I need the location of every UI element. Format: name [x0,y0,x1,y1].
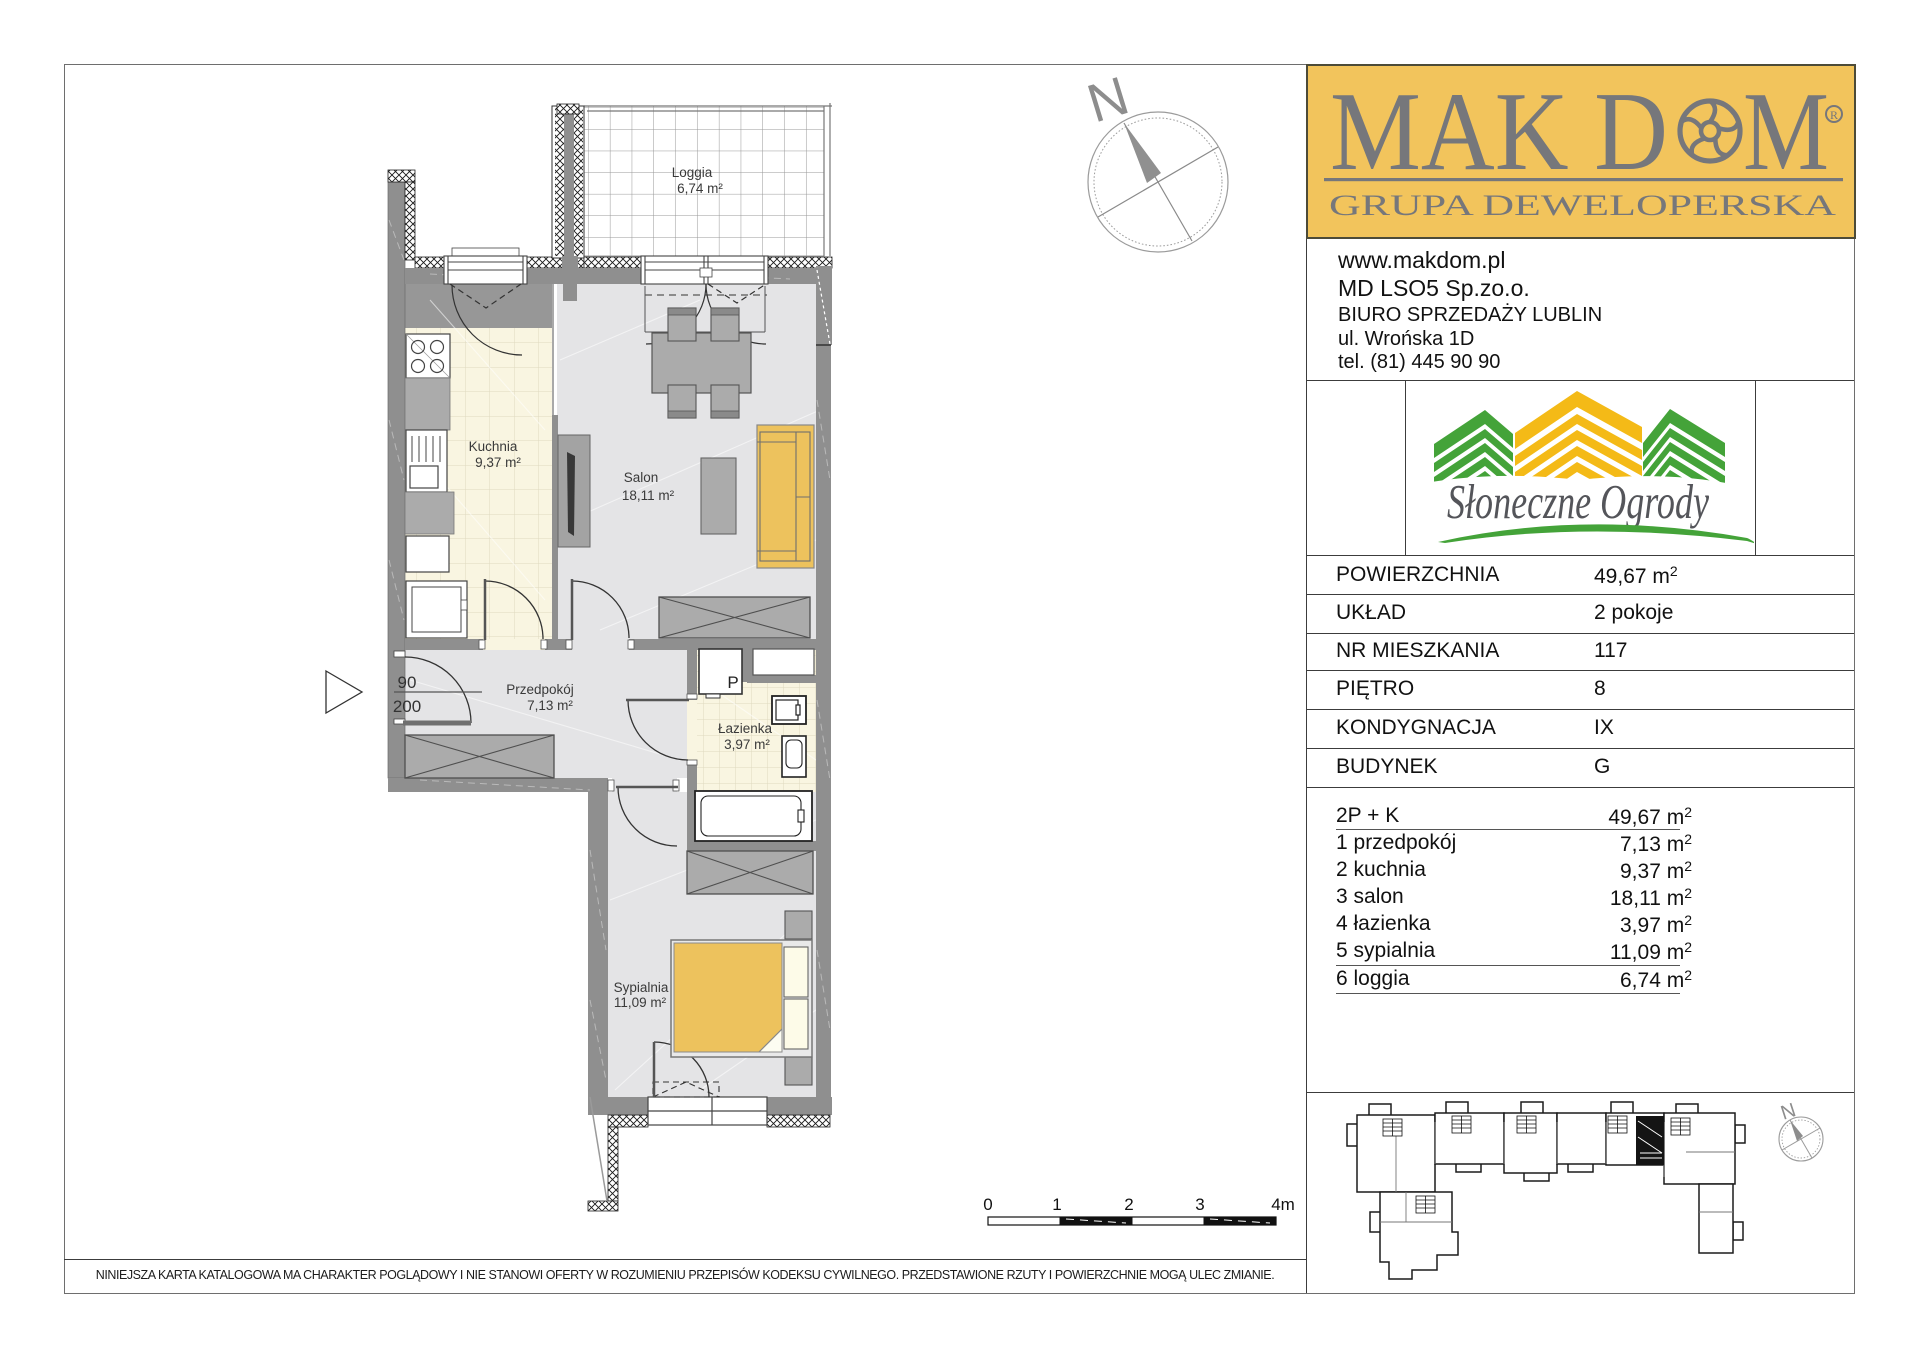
svg-text:Przedpokój: Przedpokój [506,682,574,697]
svg-text:Sypialnia: Sypialnia [614,980,669,995]
svg-text:M: M [1743,70,1829,194]
svg-text:Loggia: Loggia [672,165,713,180]
svg-text:P: P [727,673,738,692]
svg-text:90: 90 [398,673,417,692]
svg-text:R: R [1830,108,1838,122]
svg-text:7,13 m²: 7,13 m² [527,698,573,713]
svg-text:Słoneczne Ogrody: Słoneczne Ogrody [1447,474,1709,529]
svg-text:9,37 m²: 9,37 m² [475,455,521,470]
svg-text:Łazienka: Łazienka [718,721,773,736]
svg-text:18,11 m²: 18,11 m² [622,488,675,503]
svg-text:GRUPA DEWELOPERSKA: GRUPA DEWELOPERSKA [1329,189,1836,222]
svg-text:4m: 4m [1271,1195,1295,1214]
svg-text:200: 200 [393,697,421,716]
svg-text:MAK D: MAK D [1330,70,1668,194]
svg-text:1: 1 [1052,1195,1061,1214]
svg-text:11,09 m²: 11,09 m² [614,995,667,1010]
svg-text:2: 2 [1124,1195,1133,1214]
svg-text:Kuchnia: Kuchnia [469,439,518,454]
svg-text:N: N [1778,1099,1799,1124]
svg-text:Salon: Salon [624,470,659,485]
svg-text:0: 0 [983,1195,992,1214]
svg-text:3,97 m²: 3,97 m² [724,737,770,752]
svg-text:3: 3 [1195,1195,1204,1214]
svg-text:6,74 m²: 6,74 m² [677,181,723,196]
svg-text:N: N [1081,66,1136,135]
